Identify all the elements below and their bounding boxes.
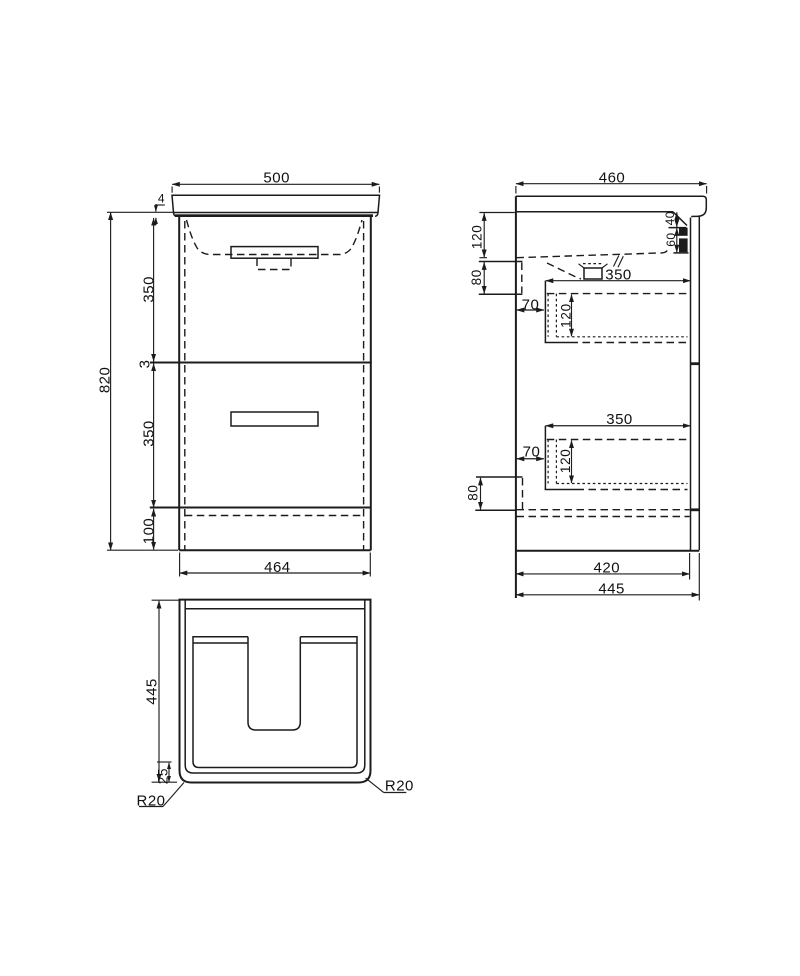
svg-text:820: 820 bbox=[97, 367, 114, 394]
svg-text:40: 40 bbox=[663, 211, 677, 225]
svg-text:25: 25 bbox=[156, 768, 171, 784]
svg-text:350: 350 bbox=[141, 420, 158, 447]
svg-text:500: 500 bbox=[263, 170, 290, 187]
svg-text:120: 120 bbox=[558, 448, 573, 473]
svg-text:464: 464 bbox=[264, 559, 291, 576]
svg-text:445: 445 bbox=[143, 678, 160, 705]
svg-text:120: 120 bbox=[470, 224, 485, 249]
svg-text:445: 445 bbox=[598, 581, 625, 598]
svg-text:70: 70 bbox=[523, 444, 541, 461]
svg-text:R20: R20 bbox=[385, 778, 414, 795]
svg-text:350: 350 bbox=[606, 411, 633, 428]
svg-text:80: 80 bbox=[469, 269, 484, 285]
svg-text:4: 4 bbox=[158, 192, 165, 206]
svg-text:60: 60 bbox=[664, 232, 678, 246]
svg-text:R20: R20 bbox=[136, 793, 165, 810]
svg-text:70: 70 bbox=[522, 296, 540, 313]
svg-text:460: 460 bbox=[599, 170, 626, 187]
svg-text:350: 350 bbox=[605, 266, 632, 283]
svg-text:3: 3 bbox=[137, 360, 154, 369]
svg-text:80: 80 bbox=[466, 484, 481, 500]
svg-text:100: 100 bbox=[141, 518, 158, 545]
svg-text:120: 120 bbox=[558, 303, 573, 328]
svg-text:350: 350 bbox=[141, 276, 158, 303]
svg-text:420: 420 bbox=[594, 560, 621, 577]
